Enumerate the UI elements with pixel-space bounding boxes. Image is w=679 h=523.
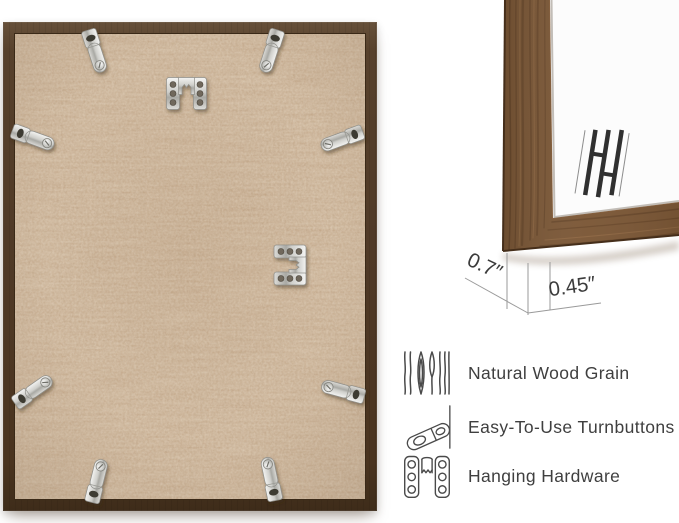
depth-dimension-line: [465, 278, 528, 313]
turnbutton: [10, 123, 56, 152]
feature-row: Easy-To-Use Turnbuttons: [398, 403, 675, 451]
turnbutton: [84, 458, 109, 504]
art-print: [550, 0, 679, 218]
feature-row: Hanging Hardware: [398, 449, 620, 503]
depth-dimension-label: 0.7″: [464, 248, 506, 284]
frame-hardware: [3, 22, 377, 511]
turnbutton-icon: [398, 399, 456, 455]
hanging-hardware-icon: [398, 450, 456, 502]
turnbutton: [257, 28, 285, 74]
turnbutton: [11, 372, 56, 410]
sawtooth-hanger: [274, 245, 306, 285]
feature-row: Natural Wood Grain: [398, 348, 630, 398]
wood-grain-icon: [398, 350, 456, 396]
sawtooth-hanger: [167, 78, 207, 110]
feature-label: Hanging Hardware: [468, 466, 620, 487]
turnbutton: [259, 456, 283, 502]
width-dimension-label: 0.45″: [547, 272, 597, 301]
frame-corner-closeup: 0.7″ 0.45″: [430, 0, 679, 330]
feature-label: Easy-To-Use Turnbuttons: [468, 417, 675, 438]
product-image: 0.7″ 0.45″ Natural Wood Grain: [0, 0, 679, 523]
turnbutton: [319, 124, 365, 153]
width-dimension-line: [528, 303, 601, 313]
turnbutton: [320, 378, 366, 404]
turnbutton: [81, 28, 109, 74]
feature-label: Natural Wood Grain: [468, 363, 630, 384]
frame-back-photo: [3, 22, 377, 511]
